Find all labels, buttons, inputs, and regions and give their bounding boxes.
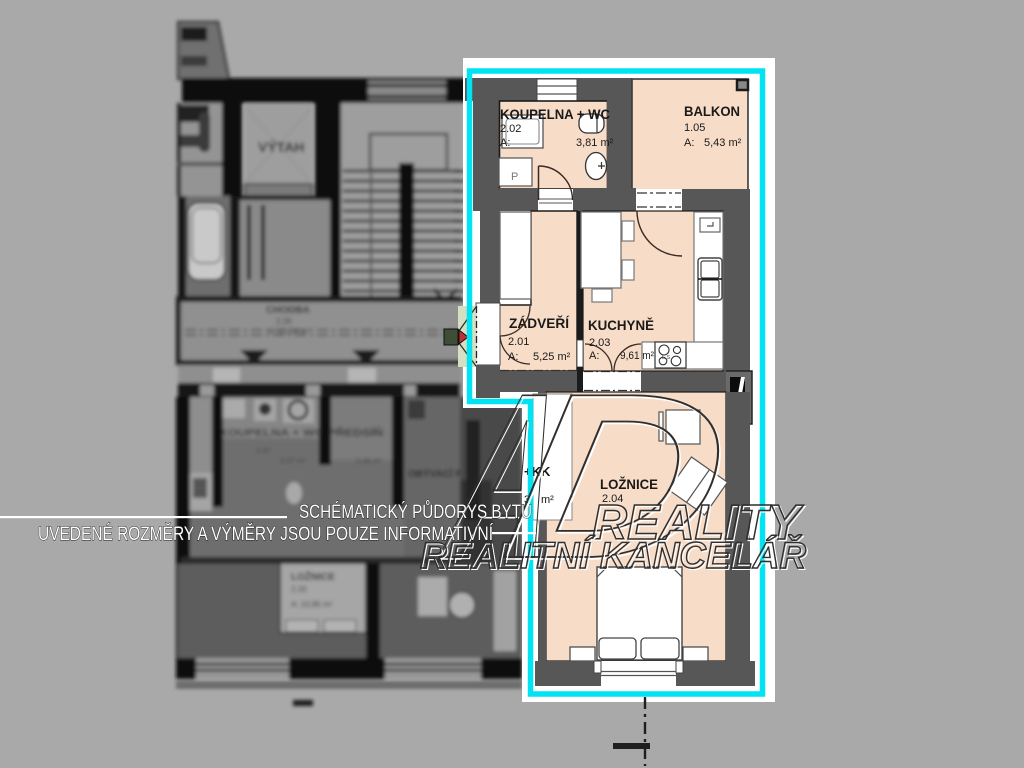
svg-text:A: 13,08 m²: A: 13,08 m²	[268, 327, 310, 336]
svg-text:2.20: 2.20	[291, 585, 307, 594]
svg-text:CHODBA: CHODBA	[266, 305, 310, 316]
svg-text:SCHÉMATICKÝ PŮDORYS BYTU: SCHÉMATICKÝ PŮDORYS BYTU	[299, 499, 532, 523]
svg-text:BALKON: BALKON	[684, 103, 740, 119]
svg-text:2,46 m²: 2,46 m²	[356, 456, 382, 465]
svg-text:KOUPELNA + WC PŘEDSÍŇ: KOUPELNA + WC PŘEDSÍŇ	[219, 426, 383, 439]
svg-text:A:: A:	[684, 137, 694, 149]
svg-text:LOŽNICE: LOŽNICE	[291, 570, 335, 583]
svg-text:5,43 m²: 5,43 m²	[704, 137, 742, 149]
svg-text:P: P	[511, 171, 518, 183]
svg-text:A:: A:	[500, 137, 510, 149]
svg-text:UVEDENÉ ROZMĚRY A VÝMĚRY JSOU: UVEDENÉ ROZMĚRY A VÝMĚRY JSOU POUZE INFO…	[38, 522, 493, 545]
svg-text:1.05: 1.05	[684, 122, 705, 134]
svg-text:2.07: 2.07	[256, 446, 271, 455]
svg-text:2.26: 2.26	[276, 317, 292, 326]
svg-text:2.02: 2.02	[500, 123, 521, 135]
svg-text:5,07 m²: 5,07 m²	[280, 456, 306, 465]
svg-text:KOUPELNA + WC: KOUPELNA + WC	[500, 106, 610, 122]
svg-text:KUCHYNĚ: KUCHYNĚ	[588, 316, 654, 333]
svg-text:A: 10,95 m²: A: 10,95 m²	[291, 600, 333, 609]
svg-text:3,81 m²: 3,81 m²	[576, 137, 614, 149]
svg-text:ZÁDVEŘÍ: ZÁDVEŘÍ	[509, 314, 570, 331]
svg-text:VÝTAH: VÝTAH	[258, 138, 304, 155]
